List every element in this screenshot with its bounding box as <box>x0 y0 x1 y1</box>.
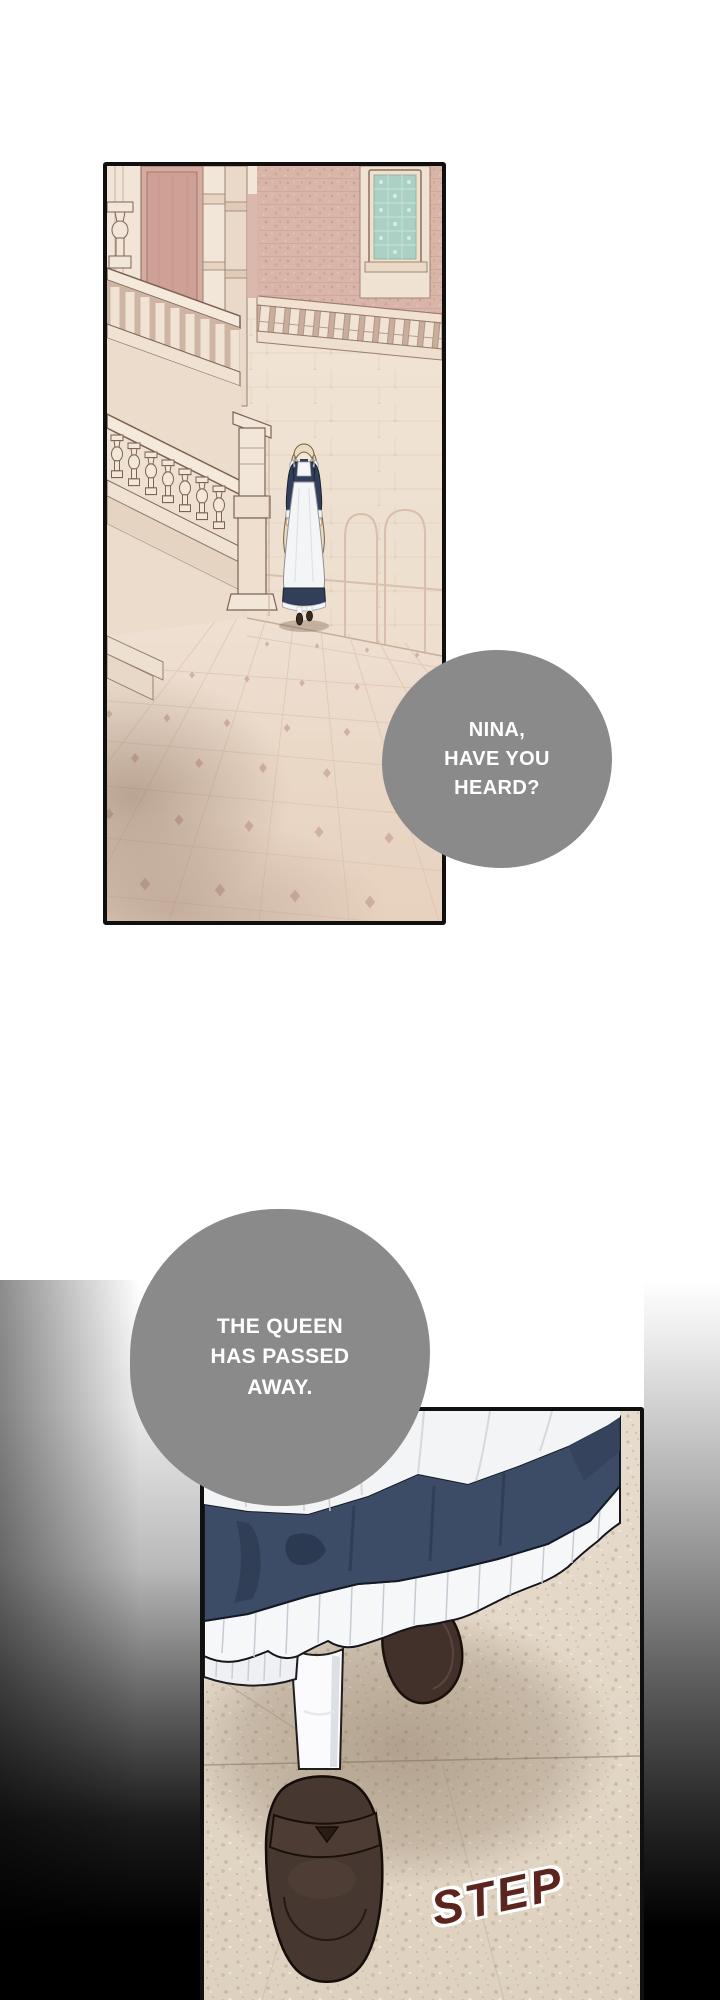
hallway-illustration <box>107 166 442 921</box>
speech-bubble-nina: NINA, HAVE YOU HEARD? <box>382 650 612 868</box>
stocking-leg <box>291 1649 343 1769</box>
speech-bubble-nina-text: NINA, HAVE YOU HEARD? <box>444 716 550 803</box>
comic-page: NINA, HAVE YOU HEARD? THE QUEEN HAS PASS… <box>0 0 720 2000</box>
speech-bubble-queen: THE QUEEN HAS PASSED AWAY. <box>130 1209 430 1506</box>
stained-glass-window <box>360 166 430 298</box>
standing-loafer-shoe <box>266 1776 382 1981</box>
speech-bubble-queen-text: THE QUEEN HAS PASSED AWAY. <box>211 1312 350 1403</box>
right-vignette-gradient <box>644 1280 720 2000</box>
